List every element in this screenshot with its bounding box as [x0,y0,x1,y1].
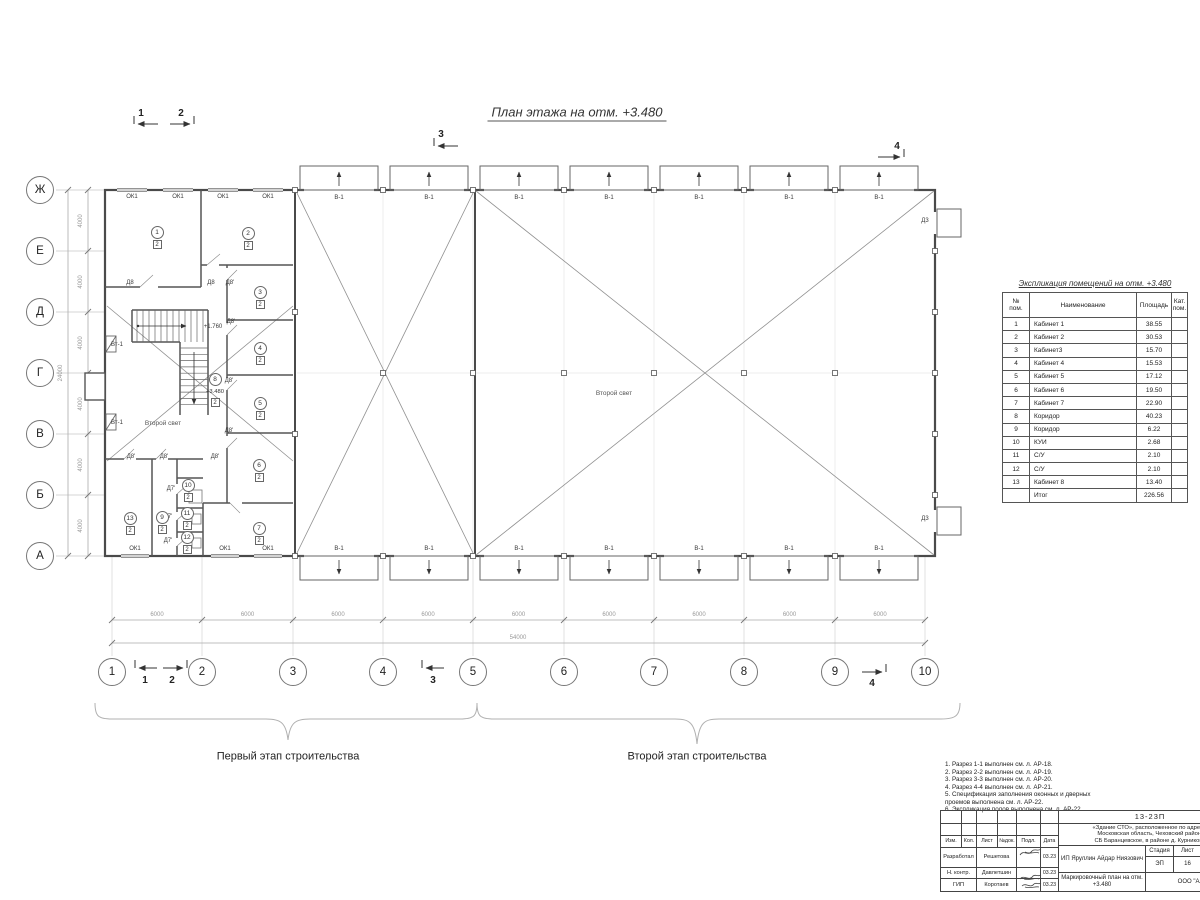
room-number-marker: 11 [181,507,194,520]
schedule-cell [1172,318,1188,331]
note-item: 5. Спецификация заполнения оконных и две… [945,791,1125,799]
second-light-label-left: Второй свет [145,421,181,428]
gate-label: В-1 [424,546,433,552]
stamp-blank-cell [941,824,962,836]
plan-label: Д8' [225,378,234,384]
schedule-cell: 10 [1003,436,1030,449]
dim-label-column: 6000 [873,612,886,618]
company-name: ООО "Альп [1146,873,1200,891]
schedule-cell: 1 [1003,318,1030,331]
axis-bubble-column: 3 [279,658,307,686]
client-name: ИП Яруллин Айдар Ниязович [1059,846,1146,873]
schedule-cell: 2.68 [1137,436,1172,449]
note-item: 2. Разрез 2-2 выполнен см. л. АР-19. [945,769,1125,777]
schedule-cell: Кабинет 5 [1030,370,1137,383]
stamp-blank-cell [941,811,962,824]
plan-label: Д7' [164,538,173,544]
schedule-row: 13Кабинет 813.40 [1003,476,1188,489]
schedule-cell [1172,331,1188,344]
gate-label: В-1 [694,195,703,201]
axis-bubble-row: В [26,420,54,448]
schedule-row: 10КУИ2.68 [1003,436,1188,449]
schedule-cell: 3 [1003,344,1030,357]
plan-label: Д8' [127,454,136,460]
room-category-marker: 2 [126,526,135,535]
stage-value: ЭП [1146,857,1174,873]
room-number-marker: 12 [181,531,194,544]
schedule-cell [1172,423,1188,436]
plan-label: Д8' [227,319,236,325]
schedule-row: Итог226.56 [1003,489,1188,502]
stamp-header-cell: Подл. [1017,836,1041,848]
schedule-cell: 30.53 [1137,331,1172,344]
schedule-cell [1172,463,1188,476]
schedule-cell: КУИ [1030,436,1137,449]
schedule-cell: 13.40 [1137,476,1172,489]
plan-label: Д8 [207,280,214,286]
stamp-name: Давлетшин [977,868,1017,879]
room-category-marker: 2 [255,473,264,482]
stamp-name: Решетова [977,848,1017,868]
schedule-cell [1172,370,1188,383]
address-line: СБ Баранцевское, в районе д. Курниково [1092,838,1200,845]
project-address: «Здание СТО», расположенное по адресу:Мо… [1059,824,1200,846]
room-category-marker: 2 [211,398,220,407]
stamp-blank-cell [1041,824,1059,836]
schedule-cell [1172,436,1188,449]
stamp-header-cell: Лист [977,836,998,848]
section-mark: 1 [138,109,144,119]
schedule-cell [1172,489,1188,502]
schedule-row: 4Кабинет 415.53 [1003,357,1188,370]
window-label: ОК1 [129,546,141,552]
schedule-row: 8Коридор40.23 [1003,410,1188,423]
section-mark: 1 [142,676,148,686]
note-item: 3. Разрез 3-3 выполнен см. л. АР-20. [945,776,1125,784]
stamp-blank-cell [998,811,1017,824]
stamp-header-cell: №док. [998,836,1017,848]
axis-bubble-column: 8 [730,658,758,686]
room-number-marker: 2 [242,227,255,240]
room-number-marker: 6 [253,459,266,472]
schedule-cell: 15.70 [1137,344,1172,357]
room-number-marker: 9 [156,511,169,524]
dim-label-rows-total: 24000 [58,365,64,382]
schedule-cell: 2.10 [1137,463,1172,476]
plan-label: Д3 [921,516,928,522]
gate-label: В-1 [604,546,613,552]
gate-label: В-1 [784,195,793,201]
schedule-cell: Кабинет 6 [1030,383,1137,396]
stamp-role: Н. контр. [941,868,977,879]
room-category-marker: 2 [158,525,167,534]
schedule-cell: 226.56 [1137,489,1172,502]
schedule-cell: Коридор [1030,410,1137,423]
dim-label-column: 6000 [512,612,525,618]
room-number-marker: 4 [254,342,267,355]
room-number-marker: 8 [209,373,222,386]
schedule-row: 9Коридор6.22 [1003,423,1188,436]
schedule-cell [1172,476,1188,489]
dim-label-row: 4000 [78,519,84,532]
room-category-marker: 2 [255,536,264,545]
schedule-cell [1172,344,1188,357]
plan-label: Д3 [921,218,928,224]
schedule-cell: С/У [1030,449,1137,462]
dim-label-row: 4000 [78,275,84,288]
drawing-sheet: { "page_title": "План этажа на отм. +3.4… [0,0,1200,900]
room-number-marker: 1 [151,226,164,239]
stamp-signature-cell [1017,848,1041,868]
schedule-cell: 2 [1003,331,1030,344]
dim-label-column: 6000 [150,612,163,618]
room-number-marker: 10 [182,479,195,492]
note-item: проемов выполнена см. л. АР-22. [945,799,1125,807]
schedule-cell: 5 [1003,370,1030,383]
plan-label: Д8' [226,280,235,286]
axis-bubble-column: 9 [821,658,849,686]
doc-number: 13-23П [1059,811,1200,824]
schedule-cell: Кабинет 7 [1030,397,1137,410]
schedule-cell: Кабинет 8 [1030,476,1137,489]
note-item: 4. Разрез 4-4 выполнен см. л. АР-21. [945,784,1125,792]
room-category-marker: 2 [183,521,192,530]
schedule-cell: 15.53 [1137,357,1172,370]
room-category-marker: 2 [256,300,265,309]
window-label: ОК1 [217,194,229,200]
plan-label: Д7' [167,486,176,492]
schedule-header-area: Площадь [1137,293,1172,318]
schedule-cell: 38.55 [1137,318,1172,331]
schedule-row: 11С/У2.10 [1003,449,1188,462]
stamp-blank-cell [1017,824,1041,836]
plan-label: Д8' [160,454,169,460]
axis-bubble-column: 10 [911,658,939,686]
schedule-cell: 13 [1003,476,1030,489]
stamp-date: 03.23 [1041,879,1059,891]
axis-bubble-row: А [26,542,54,570]
room-number-marker: 5 [254,397,267,410]
schedule-cell: 40.23 [1137,410,1172,423]
axis-bubble-column: 5 [459,658,487,686]
gate-label: В-1 [514,195,523,201]
schedule-row: 5Кабинет 517.12 [1003,370,1188,383]
schedule-cell: Кабинет 2 [1030,331,1137,344]
window-label: ОК1 [126,194,138,200]
gate-label: В-1 [784,546,793,552]
dim-label-row: 4000 [78,397,84,410]
axis-bubble-row: Д [26,298,54,326]
plan-label: Д8' [225,428,234,434]
page-title: План этажа на отм. +3.480 [487,105,666,122]
schedule-cell [1172,357,1188,370]
window-label: ОК1 [219,546,231,552]
stage-label: Стадия [1146,846,1174,857]
dim-label-column: 6000 [783,612,796,618]
stamp-role: Разработал [941,848,977,868]
schedule-cell: 6.22 [1137,423,1172,436]
axis-bubble-row: Е [26,237,54,265]
stamp-blank-cell [977,824,998,836]
stage-one-label: Первый этап строительства [217,752,360,763]
axis-bubble-column: 2 [188,658,216,686]
stamp-blank-cell [962,824,977,836]
stamp-blank-cell [977,811,998,824]
notes-list: 1. Разрез 1-1 выполнен см. л. АР-18.2. Р… [945,761,1125,814]
axis-bubble-column: 4 [369,658,397,686]
schedule-header-row: № пом. Наименование Площадь Кат. пом. [1003,293,1188,318]
stamp-blank-cell [1017,811,1041,824]
title-block: Изм.Кол.Лист№док.Подл.ДатаРазработалРеше… [940,810,1200,892]
section-mark: 4 [869,679,875,689]
stamp-date: 03.23 [1041,848,1059,868]
gate-label: В-1 [694,546,703,552]
dim-label-row: 4000 [78,458,84,471]
section-mark: 4 [894,142,900,152]
schedule-cell: 11 [1003,449,1030,462]
dim-label-column: 6000 [241,612,254,618]
stage-two-label: Второй этап строительства [628,752,767,763]
sheet-label: Лист [1174,846,1200,857]
stamp-header-cell: Изм. [941,836,962,848]
axis-bubble-column: 1 [98,658,126,686]
schedule-row: 2Кабинет 230.53 [1003,331,1188,344]
room-schedule: Экспликация помещений на отм. +3.480 № п… [1002,279,1188,503]
stamp-blank-cell [1041,811,1059,824]
schedule-cell [1172,383,1188,396]
room-category-marker: 2 [256,411,265,420]
axis-bubble-row: Б [26,481,54,509]
dim-label-column: 6000 [602,612,615,618]
section-mark: 3 [438,130,444,140]
note-item: 1. Разрез 1-1 выполнен см. л. АР-18. [945,761,1125,769]
plan-label: Вт-1 [111,342,123,348]
schedule-cell: 12 [1003,463,1030,476]
window-label: ОК1 [262,546,274,552]
schedule-cell: С/У [1030,463,1137,476]
left-niche [85,373,105,400]
dim-label-column: 6000 [421,612,434,618]
schedule-cell [1172,397,1188,410]
room-category-marker: 2 [153,240,162,249]
stamp-header-cell: Дата [1041,836,1059,848]
dim-label-column: 6000 [331,612,344,618]
schedule-row: 12С/У2.10 [1003,463,1188,476]
doc-title: Маркировочный план на отм. +3.480 [1059,873,1146,891]
schedule-header-name: Наименование [1030,293,1137,318]
schedule-cell: 7 [1003,397,1030,410]
room-category-marker: 2 [183,545,192,554]
section-mark: 2 [169,676,175,686]
schedule-cell [1172,449,1188,462]
stamp-role: ГИП [941,879,977,891]
axis-bubble-row: Г [26,359,54,387]
dim-label-columns-total: 54000 [510,635,527,641]
schedule-cell: 6 [1003,383,1030,396]
sheet-value: 16 [1174,857,1200,873]
stamp-signature-cell [1017,868,1041,879]
gate-label: В-1 [514,546,523,552]
window-label: ОК1 [172,194,184,200]
gate-label: В-1 [424,195,433,201]
dim-label-row: 4000 [78,214,84,227]
gate-label: В-1 [874,195,883,201]
stage-braces [95,703,960,744]
axis-bubble-column: 7 [640,658,668,686]
plan-label: Вт-1 [111,420,123,426]
address-line: Московская область, Чеховский район, [1092,831,1200,838]
schedule-cell: 2.10 [1137,449,1172,462]
schedule-cell: Итог [1030,489,1137,502]
plan-label: Д8' [211,454,220,460]
room-category-marker: 2 [256,356,265,365]
schedule-cell: Кабинет3 [1030,344,1137,357]
schedule-cell: Кабинет 4 [1030,357,1137,370]
schedule-cell: Кабинет 1 [1030,318,1137,331]
room-number-marker: 13 [124,512,137,525]
schedule-cell: Коридор [1030,423,1137,436]
stamp-blank-cell [962,811,977,824]
room-category-marker: 2 [184,493,193,502]
schedule-cell: 17.12 [1137,370,1172,383]
gate-label: В-1 [874,546,883,552]
gate-label: В-1 [334,546,343,552]
schedule-row: 3Кабинет315.70 [1003,344,1188,357]
stamp-header-cell: Кол. [962,836,977,848]
plan-label: +1.760 [204,324,223,330]
axis-bubble-column: 6 [550,658,578,686]
stamp-signature-cell [1017,879,1041,891]
gate-label: В-1 [334,195,343,201]
stamp-name: Коротаев [977,879,1017,891]
schedule-cell: 19.50 [1137,383,1172,396]
stamp-blank-cell [998,824,1017,836]
schedule-cell [1172,410,1188,423]
schedule-header-num: № пом. [1003,293,1030,318]
room-number-marker: 3 [254,286,267,299]
schedule-cell: 9 [1003,423,1030,436]
level-mark: +3.480 [206,389,224,395]
schedule-row: 6Кабинет 619.50 [1003,383,1188,396]
axis-bubble-row: Ж [26,176,54,204]
dim-label-column: 6000 [692,612,705,618]
section-mark: 3 [430,676,436,686]
schedule-header-cat: Кат. пом. [1172,293,1188,318]
section-mark: 2 [178,109,184,119]
schedule-cell [1003,489,1030,502]
stamp-date: 03.23 [1041,868,1059,879]
dim-label-row: 4000 [78,336,84,349]
plan-label: Д8 [126,280,133,286]
room-number-marker: 7 [253,522,266,535]
schedule-table: № пом. Наименование Площадь Кат. пом. 1К… [1002,292,1188,503]
window-label: ОК1 [262,194,274,200]
second-light-label-main: Второй свет [596,391,632,398]
schedule-row: 7Кабинет 722.90 [1003,397,1188,410]
schedule-cell: 4 [1003,357,1030,370]
schedule-cell: 8 [1003,410,1030,423]
schedule-title: Экспликация помещений на отм. +3.480 [1002,279,1188,288]
gate-label: В-1 [604,195,613,201]
schedule-cell: 22.90 [1137,397,1172,410]
schedule-row: 1Кабинет 138.55 [1003,318,1188,331]
room-category-marker: 2 [244,241,253,250]
